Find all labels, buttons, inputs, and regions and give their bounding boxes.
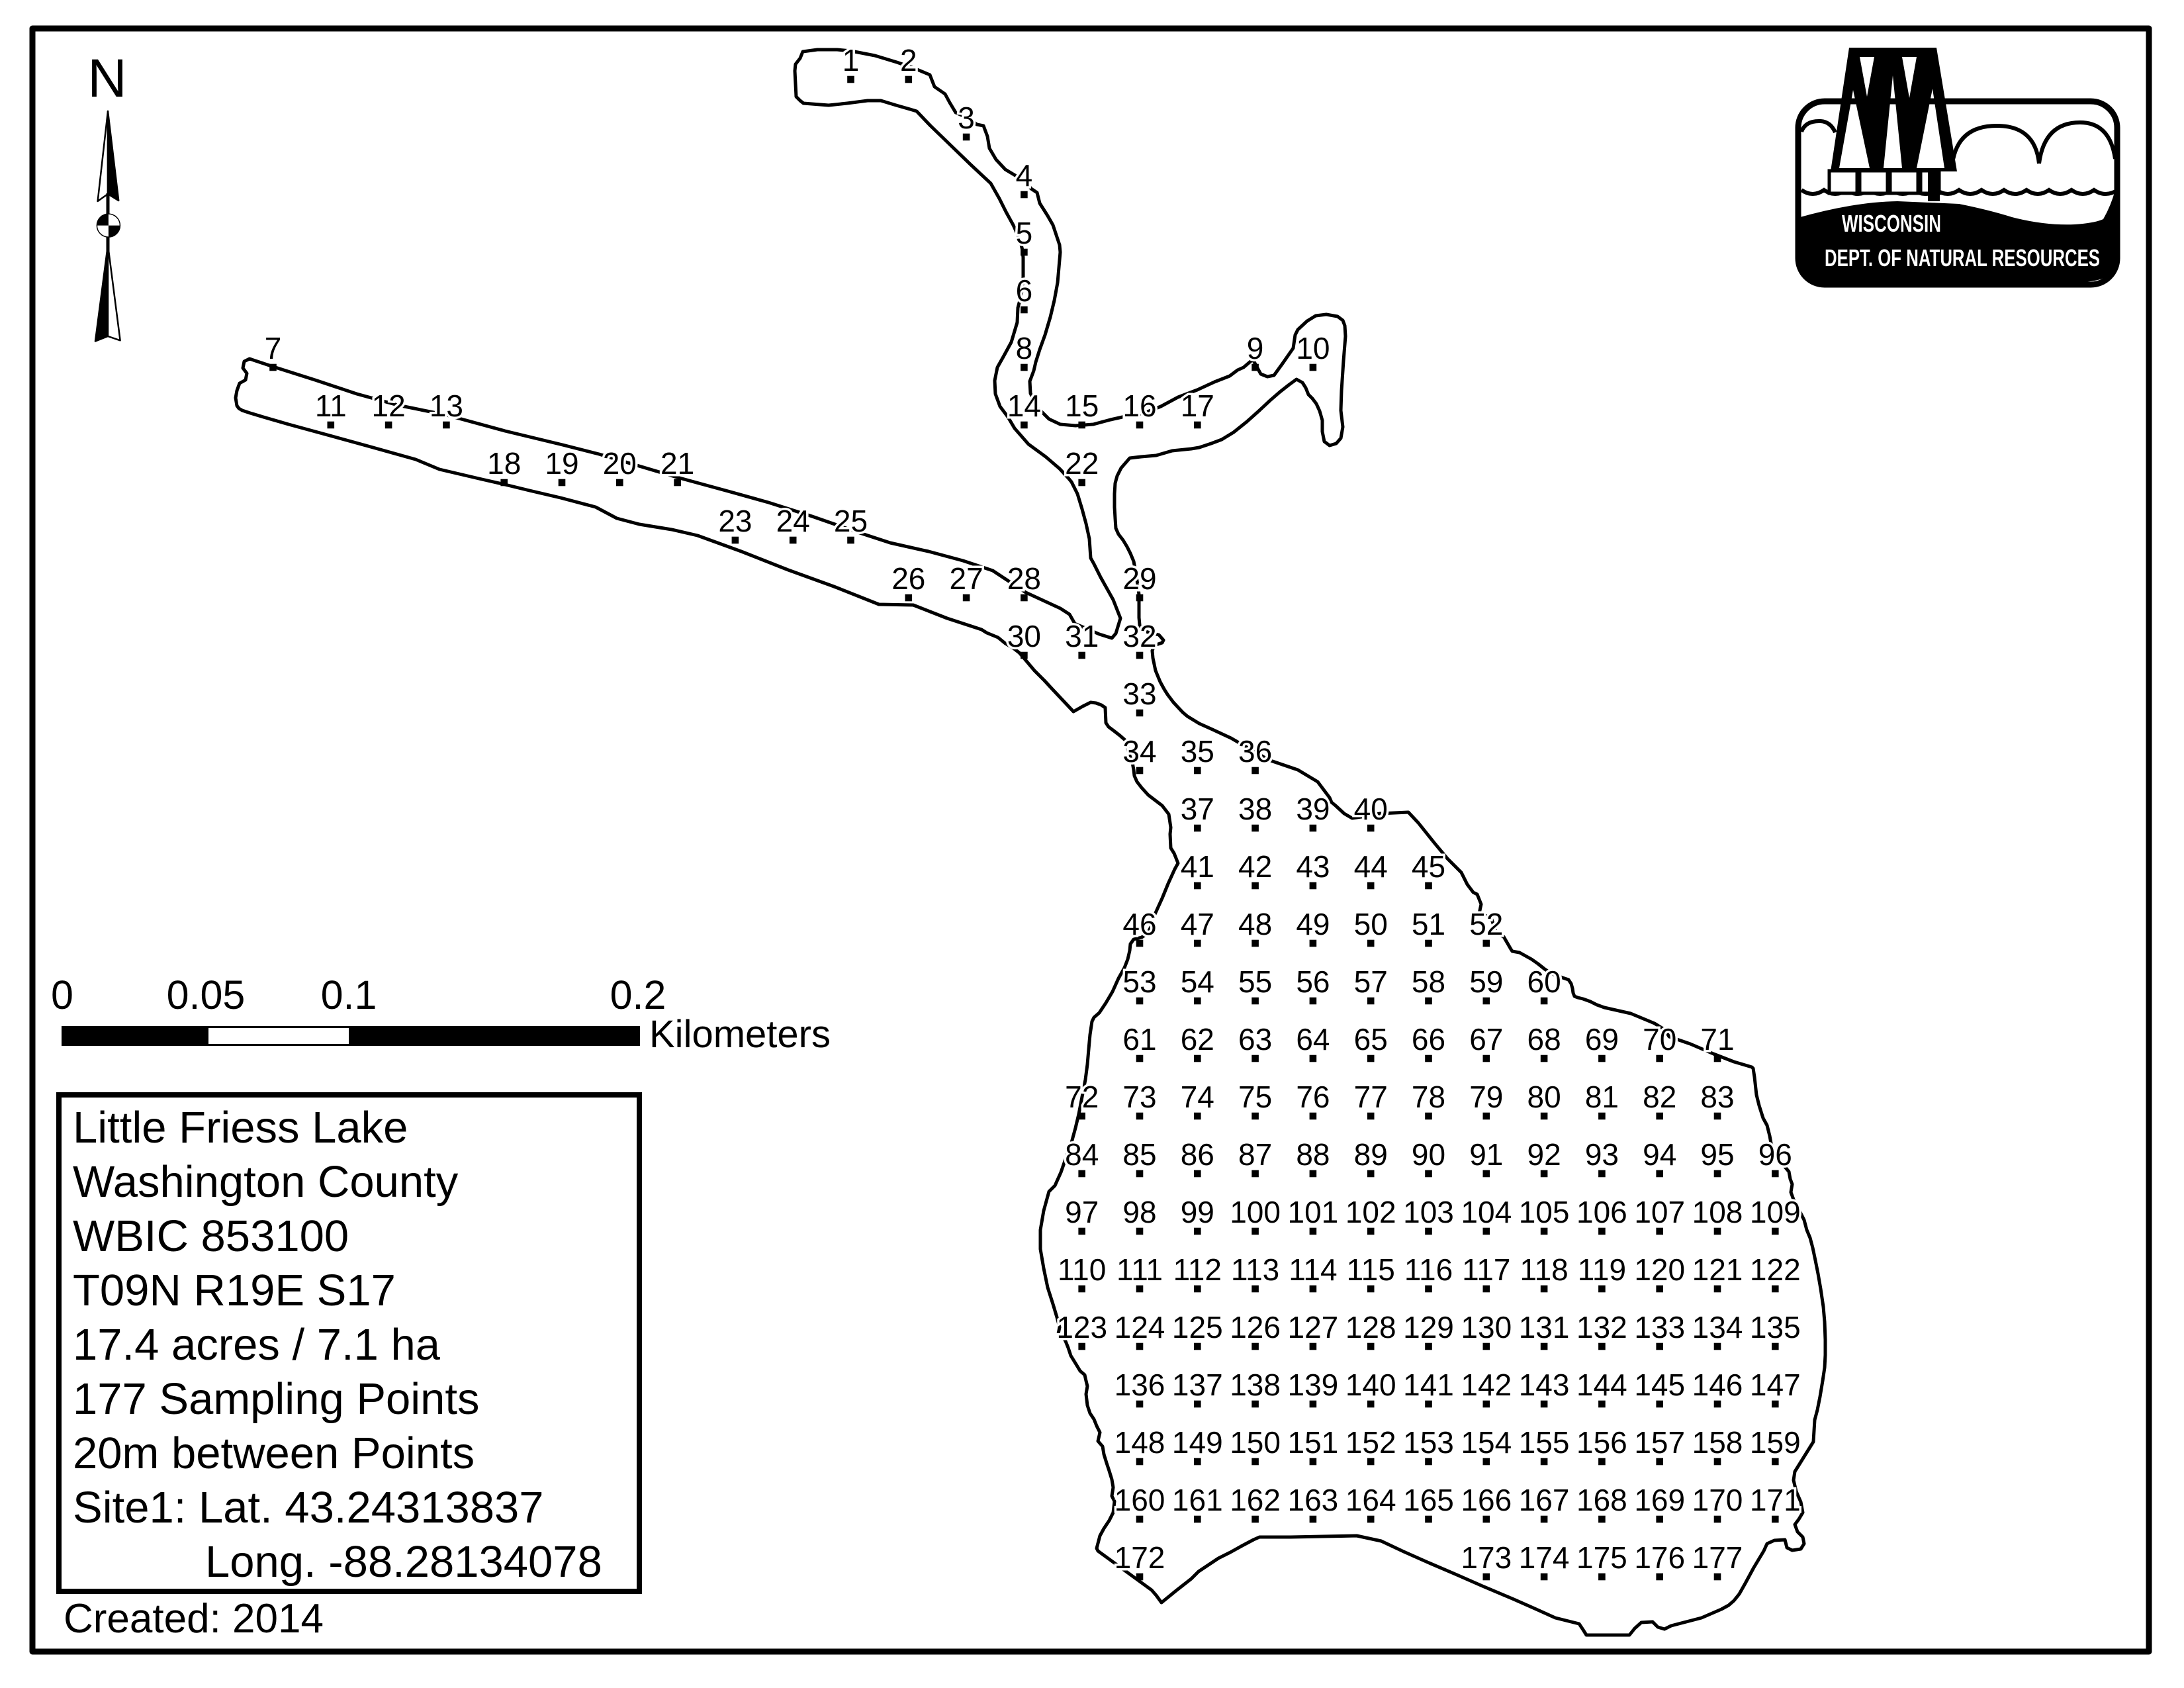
svg-text:144: 144: [1576, 1368, 1627, 1402]
svg-text:32: 32: [1122, 619, 1156, 653]
svg-text:145: 145: [1634, 1368, 1685, 1402]
svg-text:58: 58: [1412, 964, 1445, 999]
svg-text:56: 56: [1296, 964, 1330, 999]
svg-text:79: 79: [1469, 1080, 1503, 1114]
svg-text:98: 98: [1122, 1195, 1156, 1229]
svg-text:158: 158: [1692, 1425, 1743, 1460]
svg-text:133: 133: [1634, 1310, 1685, 1344]
svg-text:70: 70: [1643, 1022, 1676, 1056]
svg-text:127: 127: [1288, 1310, 1339, 1344]
svg-text:67: 67: [1469, 1022, 1503, 1056]
svg-text:DEPT. OF NATURAL RESOURCES: DEPT. OF NATURAL RESOURCES: [1825, 244, 2100, 271]
svg-text:148: 148: [1115, 1425, 1165, 1460]
svg-text:159: 159: [1750, 1425, 1801, 1460]
svg-text:77: 77: [1354, 1080, 1388, 1114]
svg-text:16: 16: [1122, 389, 1156, 423]
svg-text:168: 168: [1576, 1483, 1627, 1517]
svg-text:136: 136: [1115, 1368, 1165, 1402]
svg-text:29: 29: [1122, 561, 1156, 596]
svg-text:128: 128: [1345, 1310, 1396, 1344]
svg-text:31: 31: [1065, 619, 1099, 653]
svg-text:130: 130: [1461, 1310, 1512, 1344]
svg-text:109: 109: [1750, 1195, 1801, 1229]
svg-text:68: 68: [1527, 1022, 1561, 1056]
svg-text:155: 155: [1519, 1425, 1570, 1460]
svg-text:36: 36: [1238, 734, 1272, 769]
svg-text:59: 59: [1469, 964, 1503, 999]
svg-text:174: 174: [1519, 1540, 1570, 1575]
svg-text:17.4 acres / 7.1 ha: 17.4 acres / 7.1 ha: [73, 1320, 441, 1370]
svg-text:65: 65: [1354, 1022, 1388, 1056]
svg-text:20: 20: [603, 446, 637, 481]
svg-text:61: 61: [1122, 1022, 1156, 1056]
svg-text:143: 143: [1519, 1368, 1570, 1402]
svg-text:129: 129: [1403, 1310, 1454, 1344]
svg-text:87: 87: [1238, 1137, 1272, 1172]
svg-text:Washington County: Washington County: [73, 1157, 459, 1207]
svg-text:81: 81: [1585, 1080, 1619, 1114]
svg-text:0.05: 0.05: [167, 972, 246, 1017]
svg-text:104: 104: [1461, 1195, 1512, 1229]
svg-text:2: 2: [900, 43, 917, 77]
svg-text:74: 74: [1181, 1080, 1214, 1114]
svg-text:88: 88: [1296, 1137, 1330, 1172]
svg-text:57: 57: [1354, 964, 1388, 999]
svg-text:69: 69: [1585, 1022, 1619, 1056]
svg-text:101: 101: [1288, 1195, 1339, 1229]
svg-text:71: 71: [1700, 1022, 1734, 1056]
svg-text:Little Friess Lake: Little Friess Lake: [73, 1103, 408, 1152]
svg-text:0: 0: [51, 972, 73, 1017]
svg-text:157: 157: [1634, 1425, 1685, 1460]
svg-text:100: 100: [1230, 1195, 1281, 1229]
svg-text:90: 90: [1412, 1137, 1445, 1172]
svg-text:120: 120: [1634, 1252, 1685, 1287]
svg-text:60: 60: [1527, 964, 1561, 999]
svg-text:40: 40: [1354, 792, 1388, 826]
svg-text:23: 23: [718, 504, 752, 538]
svg-text:126: 126: [1230, 1310, 1281, 1344]
svg-text:62: 62: [1181, 1022, 1214, 1056]
svg-text:121: 121: [1692, 1252, 1743, 1287]
svg-text:169: 169: [1634, 1483, 1685, 1517]
svg-text:113: 113: [1231, 1252, 1279, 1287]
svg-text:76: 76: [1296, 1080, 1330, 1114]
svg-text:37: 37: [1181, 792, 1214, 826]
svg-text:139: 139: [1288, 1368, 1339, 1402]
svg-text:73: 73: [1122, 1080, 1156, 1114]
svg-text:34: 34: [1122, 734, 1156, 769]
svg-text:30: 30: [1007, 619, 1041, 653]
svg-text:108: 108: [1692, 1195, 1743, 1229]
svg-text:137: 137: [1172, 1368, 1223, 1402]
svg-text:9: 9: [1247, 331, 1264, 365]
svg-text:Kilometers: Kilometers: [649, 1013, 831, 1056]
svg-text:72: 72: [1065, 1080, 1099, 1114]
svg-text:94: 94: [1643, 1137, 1676, 1172]
svg-text:125: 125: [1172, 1310, 1223, 1344]
svg-text:7: 7: [265, 331, 282, 365]
svg-text:131: 131: [1519, 1310, 1570, 1344]
svg-text:Long. -88.28134078: Long. -88.28134078: [205, 1537, 602, 1587]
svg-text:4: 4: [1016, 158, 1033, 193]
svg-text:55: 55: [1238, 964, 1272, 999]
svg-text:14: 14: [1007, 389, 1041, 423]
svg-text:WBIC 853100: WBIC 853100: [73, 1211, 349, 1261]
svg-text:84: 84: [1065, 1137, 1099, 1172]
svg-text:118: 118: [1520, 1252, 1568, 1287]
svg-text:83: 83: [1700, 1080, 1734, 1114]
svg-text:N: N: [87, 48, 126, 109]
svg-text:164: 164: [1345, 1483, 1396, 1517]
svg-text:38: 38: [1238, 792, 1272, 826]
svg-text:177: 177: [1692, 1540, 1743, 1575]
svg-text:27: 27: [950, 561, 983, 596]
svg-text:132: 132: [1576, 1310, 1627, 1344]
svg-text:135: 135: [1750, 1310, 1801, 1344]
svg-text:106: 106: [1576, 1195, 1627, 1229]
svg-text:35: 35: [1181, 734, 1214, 769]
svg-text:21: 21: [660, 446, 694, 481]
svg-text:19: 19: [545, 446, 578, 481]
svg-text:114: 114: [1289, 1252, 1337, 1287]
svg-text:103: 103: [1403, 1195, 1454, 1229]
svg-text:134: 134: [1692, 1310, 1743, 1344]
svg-text:12: 12: [372, 389, 406, 423]
svg-text:5: 5: [1016, 216, 1033, 250]
svg-text:102: 102: [1345, 1195, 1396, 1229]
svg-text:110: 110: [1058, 1252, 1106, 1287]
svg-text:63: 63: [1238, 1022, 1272, 1056]
svg-text:51: 51: [1412, 907, 1445, 941]
svg-text:99: 99: [1181, 1195, 1214, 1229]
svg-text:47: 47: [1181, 907, 1214, 941]
svg-text:20m between Points: 20m between Points: [73, 1429, 475, 1478]
svg-text:64: 64: [1296, 1022, 1330, 1056]
svg-text:146: 146: [1692, 1368, 1743, 1402]
svg-text:Site1: Lat. 43.24313837: Site1: Lat. 43.24313837: [73, 1483, 544, 1532]
svg-text:53: 53: [1122, 964, 1156, 999]
svg-text:105: 105: [1519, 1195, 1570, 1229]
svg-text:172: 172: [1115, 1540, 1165, 1575]
svg-text:39: 39: [1296, 792, 1330, 826]
svg-text:52: 52: [1469, 907, 1503, 941]
svg-text:22: 22: [1065, 446, 1099, 481]
svg-text:150: 150: [1230, 1425, 1281, 1460]
svg-text:115: 115: [1347, 1252, 1395, 1287]
svg-text:170: 170: [1692, 1483, 1743, 1517]
svg-text:48: 48: [1238, 907, 1272, 941]
svg-text:124: 124: [1115, 1310, 1165, 1344]
svg-text:177 Sampling Points: 177 Sampling Points: [73, 1374, 480, 1424]
svg-text:161: 161: [1172, 1483, 1223, 1517]
svg-text:17: 17: [1181, 389, 1214, 423]
svg-text:50: 50: [1354, 907, 1388, 941]
svg-text:122: 122: [1750, 1252, 1801, 1287]
svg-text:147: 147: [1750, 1368, 1801, 1402]
svg-text:6: 6: [1016, 273, 1033, 308]
svg-text:85: 85: [1122, 1137, 1156, 1172]
svg-text:78: 78: [1412, 1080, 1445, 1114]
svg-text:166: 166: [1461, 1483, 1512, 1517]
svg-text:149: 149: [1172, 1425, 1223, 1460]
svg-text:43: 43: [1296, 849, 1330, 884]
svg-text:116: 116: [1404, 1252, 1453, 1287]
svg-text:171: 171: [1750, 1483, 1801, 1517]
svg-text:15: 15: [1065, 389, 1099, 423]
svg-text:117: 117: [1462, 1252, 1510, 1287]
svg-text:24: 24: [776, 504, 810, 538]
svg-text:41: 41: [1181, 849, 1214, 884]
svg-text:160: 160: [1115, 1483, 1165, 1517]
svg-text:167: 167: [1519, 1483, 1570, 1517]
svg-text:140: 140: [1345, 1368, 1396, 1402]
svg-text:WISCONSIN: WISCONSIN: [1842, 210, 1941, 237]
svg-text:10: 10: [1296, 331, 1330, 365]
svg-text:11: 11: [315, 389, 347, 423]
svg-text:154: 154: [1461, 1425, 1512, 1460]
svg-text:8: 8: [1016, 331, 1033, 365]
svg-text:112: 112: [1173, 1252, 1222, 1287]
svg-text:54: 54: [1181, 964, 1214, 999]
svg-text:176: 176: [1634, 1540, 1685, 1575]
svg-text:33: 33: [1122, 677, 1156, 711]
svg-text:111: 111: [1116, 1252, 1163, 1287]
svg-text:165: 165: [1403, 1483, 1454, 1517]
svg-text:153: 153: [1403, 1425, 1454, 1460]
svg-text:25: 25: [834, 504, 868, 538]
svg-text:96: 96: [1758, 1137, 1792, 1172]
svg-text:66: 66: [1412, 1022, 1445, 1056]
svg-text:163: 163: [1288, 1483, 1339, 1517]
svg-text:93: 93: [1585, 1137, 1619, 1172]
svg-text:97: 97: [1065, 1195, 1099, 1229]
svg-text:89: 89: [1354, 1137, 1388, 1172]
svg-text:119: 119: [1578, 1252, 1626, 1287]
svg-text:162: 162: [1230, 1483, 1281, 1517]
svg-text:107: 107: [1634, 1195, 1685, 1229]
svg-text:T09N R19E S17: T09N R19E S17: [73, 1266, 396, 1315]
svg-text:18: 18: [487, 446, 521, 481]
svg-text:42: 42: [1238, 849, 1272, 884]
svg-text:28: 28: [1007, 561, 1041, 596]
svg-text:138: 138: [1230, 1368, 1281, 1402]
svg-text:91: 91: [1469, 1137, 1503, 1172]
svg-text:1: 1: [842, 43, 860, 77]
svg-text:95: 95: [1700, 1137, 1734, 1172]
svg-text:175: 175: [1576, 1540, 1627, 1575]
svg-text:156: 156: [1576, 1425, 1627, 1460]
svg-text:152: 152: [1345, 1425, 1396, 1460]
svg-text:75: 75: [1238, 1080, 1272, 1114]
svg-text:0.2: 0.2: [610, 972, 666, 1017]
svg-text:3: 3: [958, 101, 975, 135]
svg-text:173: 173: [1461, 1540, 1512, 1575]
svg-text:26: 26: [891, 561, 925, 596]
svg-text:45: 45: [1412, 849, 1445, 884]
svg-text:142: 142: [1461, 1368, 1512, 1402]
svg-text:0.1: 0.1: [321, 972, 377, 1017]
svg-text:80: 80: [1527, 1080, 1561, 1114]
svg-text:86: 86: [1181, 1137, 1214, 1172]
svg-text:44: 44: [1354, 849, 1388, 884]
svg-text:Created: 2014: Created: 2014: [64, 1596, 324, 1642]
svg-text:141: 141: [1403, 1368, 1454, 1402]
svg-text:49: 49: [1296, 907, 1330, 941]
svg-text:123: 123: [1056, 1310, 1107, 1344]
svg-text:151: 151: [1288, 1425, 1339, 1460]
svg-text:92: 92: [1527, 1137, 1561, 1172]
svg-text:82: 82: [1643, 1080, 1676, 1114]
svg-text:46: 46: [1122, 907, 1156, 941]
svg-text:13: 13: [430, 389, 463, 423]
